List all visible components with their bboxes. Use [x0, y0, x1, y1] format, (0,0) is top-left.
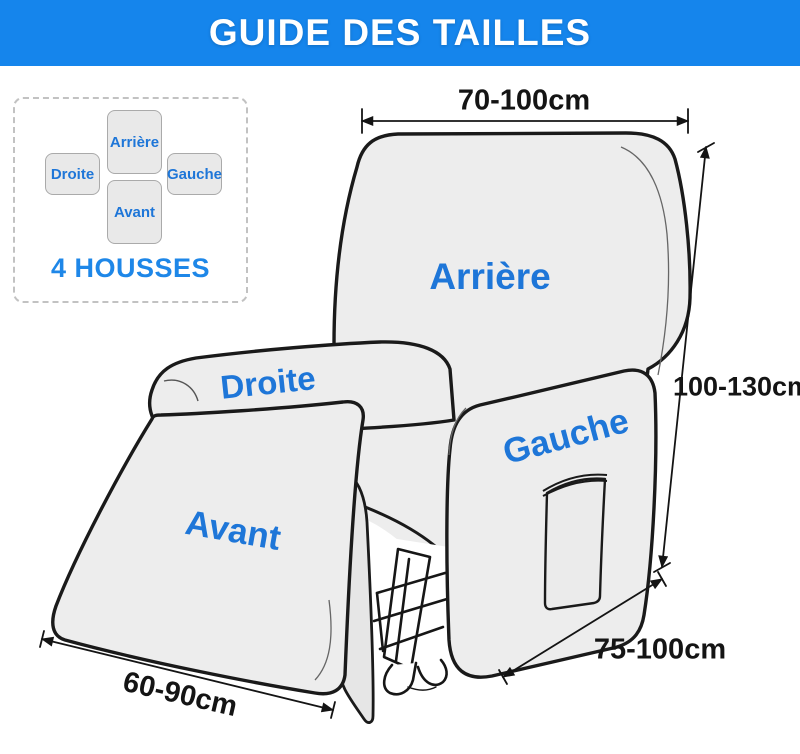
size-guide-page: GUIDE DES TAILLES Arrière Droite Gauche … [0, 0, 800, 754]
chair-label-back: Arrière [429, 256, 550, 298]
dimension-backrest-width: 70-100cm [458, 85, 590, 118]
footrest-shape [53, 402, 364, 694]
dimension-depth: 75-100cm [594, 634, 726, 667]
dimension-height: 100-130cm [673, 372, 800, 403]
side-pocket [543, 475, 607, 610]
